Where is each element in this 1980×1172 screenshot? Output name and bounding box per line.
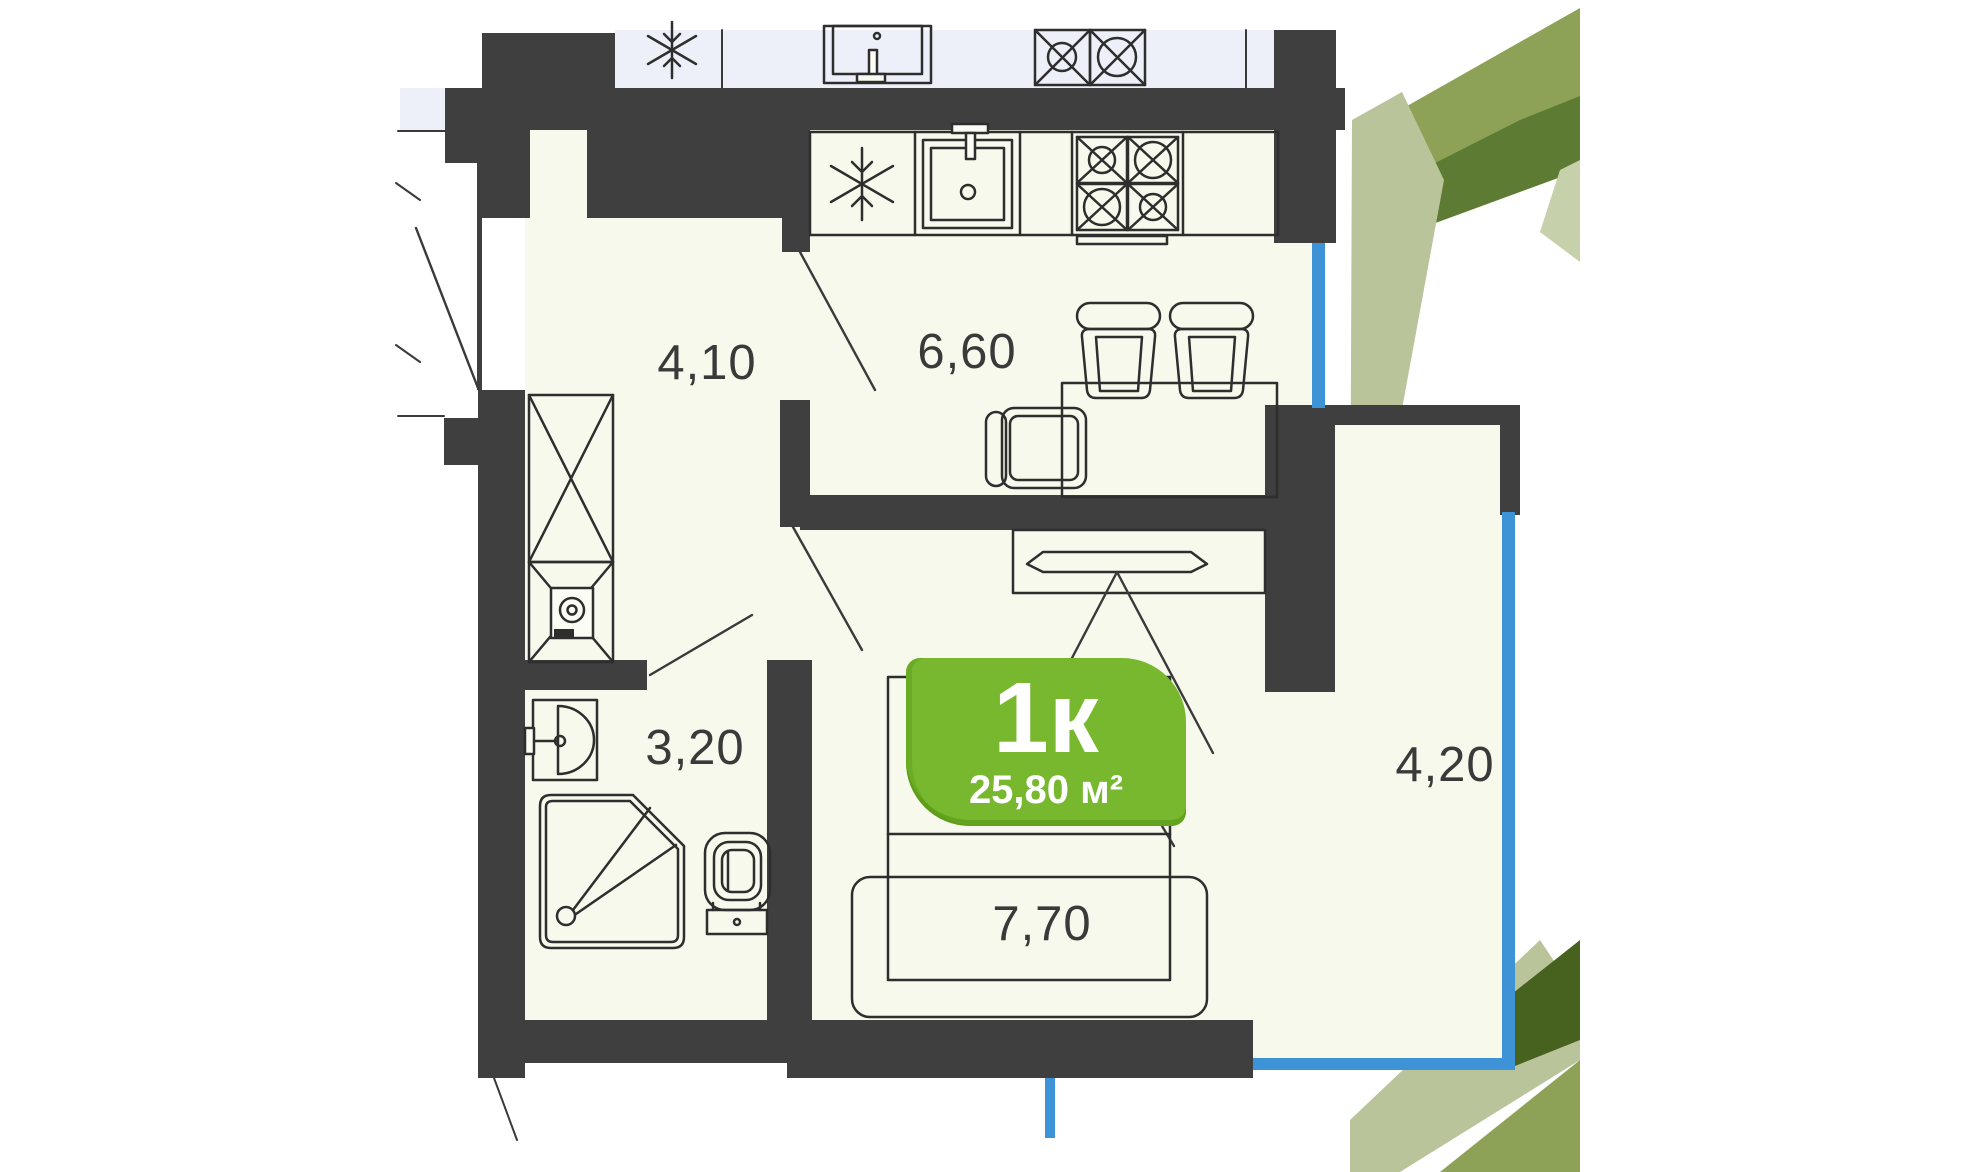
bathroom-area-label: 3,20 bbox=[645, 720, 744, 776]
floor-plan-drawing bbox=[0, 0, 1980, 1172]
hallway-area-label: 4,10 bbox=[657, 335, 756, 391]
apartment-type-badge: 1к 25,80 м² bbox=[906, 658, 1186, 826]
balcony-window-right bbox=[1502, 512, 1515, 1070]
entrance-door-swing bbox=[416, 228, 478, 388]
window-axis-mark bbox=[1045, 1078, 1055, 1138]
balcony-area-label: 4,20 bbox=[1395, 737, 1494, 793]
floor-plan: 4,10 6,60 3,20 7,70 4,20 1к 25,80 м² bbox=[0, 0, 1980, 1172]
balcony-window-bottom bbox=[1253, 1058, 1515, 1070]
apartment-area-label: 25,80 м² bbox=[969, 768, 1123, 813]
living-area-label: 7,70 bbox=[992, 896, 1091, 952]
apartment-type-label: 1к bbox=[993, 672, 1099, 764]
kitchen-window bbox=[1312, 243, 1325, 408]
kitchen-area-label: 6,60 bbox=[917, 324, 1016, 380]
